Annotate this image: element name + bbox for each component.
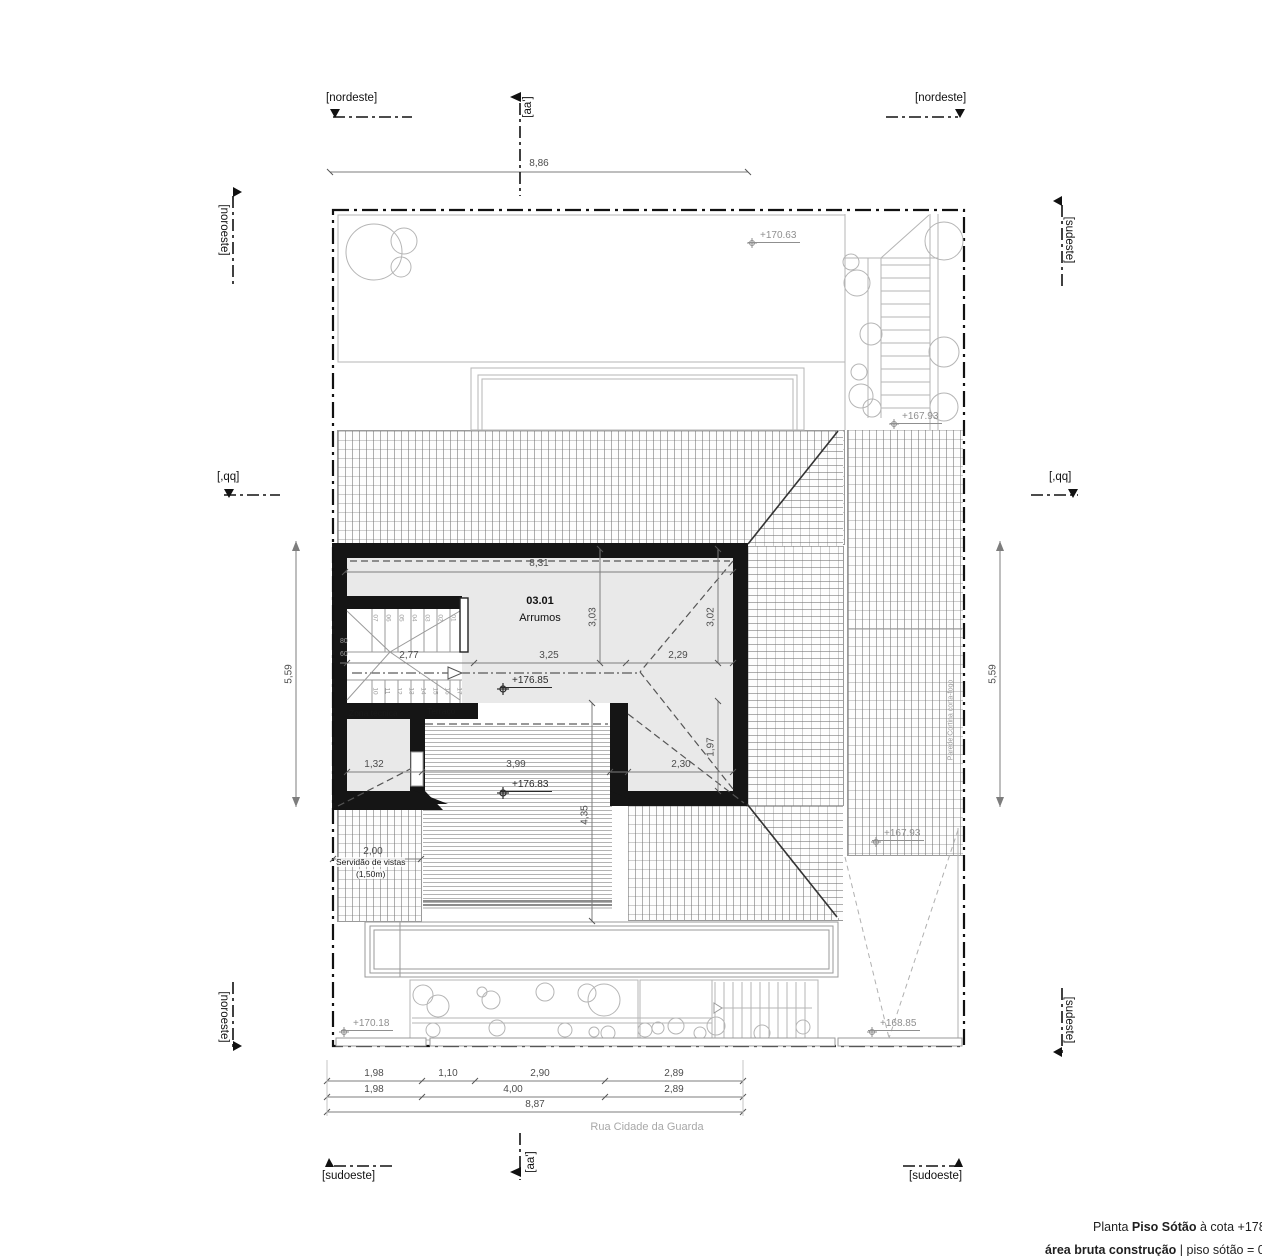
level-garden-bottom: +170.18 (341, 1018, 393, 1031)
dim-b2b: 4,00 (503, 1084, 522, 1095)
section-label-nordeste-left: [nordeste] (326, 92, 377, 104)
dim-terrace-depth: 4,35 (580, 805, 591, 824)
section-markers (224, 92, 1078, 1180)
tread-u5: 02 (437, 614, 444, 621)
servidao-label-2: (1,50m) (356, 869, 385, 879)
section-label-sudeste-top: [sudeste] (1063, 217, 1075, 264)
level-garden-top: +170.63 (748, 230, 800, 243)
level-attic: +176.85 (500, 675, 552, 688)
tread-u4: 03 (424, 614, 431, 621)
subtitle-bold: área bruta construção (1045, 1243, 1176, 1256)
drawing-subtitle: área bruta construção | piso sótão = 031 (1045, 1243, 1262, 1256)
wall-corner-flares (410, 789, 648, 810)
dim-room-width: 8,31 (529, 558, 548, 569)
dimension-lines (296, 169, 1000, 1116)
dim-room-depth-left: 3,03 (588, 607, 599, 626)
section-label-aa-top: [aa'] (522, 96, 534, 117)
room-number: 03.01 (526, 595, 554, 607)
dimension-arrows (292, 541, 1004, 807)
section-label-qq-right: [,qq] (1049, 471, 1071, 483)
terrace-bottom-edge (423, 901, 612, 908)
dim-b1b: 1,10 (438, 1068, 457, 1079)
section-label-sudoeste-left: [sudoeste] (322, 1170, 375, 1182)
terraco-label: Terraço (427, 706, 455, 716)
zona-door (411, 752, 423, 786)
level-markers (339, 238, 899, 1037)
tread-u3: 04 (411, 614, 418, 621)
dim-servidao: 2,00 (363, 846, 382, 857)
site-boundary (333, 210, 964, 1046)
title-name: Piso Sótão (1132, 1220, 1197, 1234)
dim-lower-right-depth: 1,97 (706, 737, 717, 756)
east-stair-garden (843, 214, 963, 430)
dim-stair-going: 60 (340, 651, 348, 658)
dim-stair-width: 2,77 (399, 650, 418, 661)
tread-l7: 17 (456, 687, 463, 694)
walk-line-arrow (448, 667, 462, 679)
title-suffix: à cota +178, (1197, 1220, 1262, 1234)
dim-b1d: 2,89 (664, 1068, 683, 1079)
section-label-nordeste-right: [nordeste] (915, 92, 966, 104)
tread-l6: 16 (444, 687, 451, 694)
bottom-garden (410, 980, 818, 1041)
lower-floor-frame (365, 922, 838, 977)
tread-u6: 01 (450, 614, 457, 621)
tread-l5: 15 (432, 687, 439, 694)
floor-plan-canvas: [nordeste] [nordeste] [aa'] [aa'] [noroe… (0, 0, 1262, 1256)
zona-tecnica-label: Zona técnica (349, 708, 398, 718)
section-label-sudeste-bottom: [sudeste] (1063, 997, 1075, 1044)
stair-door-leaf (460, 598, 468, 652)
section-label-noroeste-bottom: [noroeste] (218, 991, 230, 1042)
section-label-qq-left: [,qq] (217, 471, 239, 483)
street-name: Rua Cidade da Guarda (590, 1121, 703, 1133)
level-ramp-top: +167.93 (872, 828, 924, 841)
roof-hip-lines (747, 431, 838, 917)
top-garden (338, 215, 845, 430)
dim-b2c: 2,89 (664, 1084, 683, 1095)
dim-terrace-width: 3,99 (506, 759, 525, 770)
drawing-title: Planta Piso Sótão à cota +178, (1093, 1220, 1262, 1234)
firewall-note: Parede Cortina corta-fogo (948, 680, 955, 761)
level-terrace: +176.83 (500, 779, 552, 792)
dim-b-total: 8,87 (525, 1099, 544, 1110)
tread-l2: 12 (396, 687, 403, 694)
dim-side-left: 5,59 (284, 664, 295, 683)
dim-site-width: 8,86 (529, 158, 548, 169)
linework (0, 0, 1262, 1256)
tread-l0: 10 (372, 687, 379, 694)
dim-side-right: 5,59 (988, 664, 999, 683)
dim-room-depth-right: 3,02 (706, 607, 717, 626)
tread-u0: 07 (372, 614, 379, 621)
dim-b1a: 1,98 (364, 1068, 383, 1079)
dim-b1c: 2,90 (530, 1068, 549, 1079)
subtitle-rest: | piso sótão = 031 (1176, 1243, 1262, 1256)
dim-zona: 1,32 (364, 759, 383, 770)
section-label-noroeste-top: [noroeste] (218, 204, 230, 255)
title-prefix: Planta (1093, 1220, 1132, 1234)
dim-stair-rise: 80 (340, 638, 348, 645)
pavement-strips (336, 1038, 962, 1046)
level-ramp-bottom: +168.85 (868, 1018, 920, 1031)
room-name: Arrumos (519, 612, 561, 624)
tread-l1: 11 (384, 688, 391, 695)
servidao-label-1: Servidão de vistas (336, 857, 405, 867)
ramp (845, 828, 958, 1038)
dim-room-right: 2,29 (668, 650, 687, 661)
section-label-aa-bottom: [aa'] (525, 1151, 537, 1172)
tread-u2: 05 (398, 614, 405, 621)
section-label-sudoeste-right: [sudoeste] (909, 1170, 962, 1182)
dim-b2a: 1,98 (364, 1084, 383, 1095)
tread-l3: 13 (408, 687, 415, 694)
level-stair-right: +167.93 (890, 411, 942, 424)
tread-u1: 06 (385, 614, 392, 621)
dim-lower-right: 2,30 (671, 759, 690, 770)
tread-l4: 14 (420, 687, 427, 694)
dim-room-mid: 3,25 (539, 650, 558, 661)
